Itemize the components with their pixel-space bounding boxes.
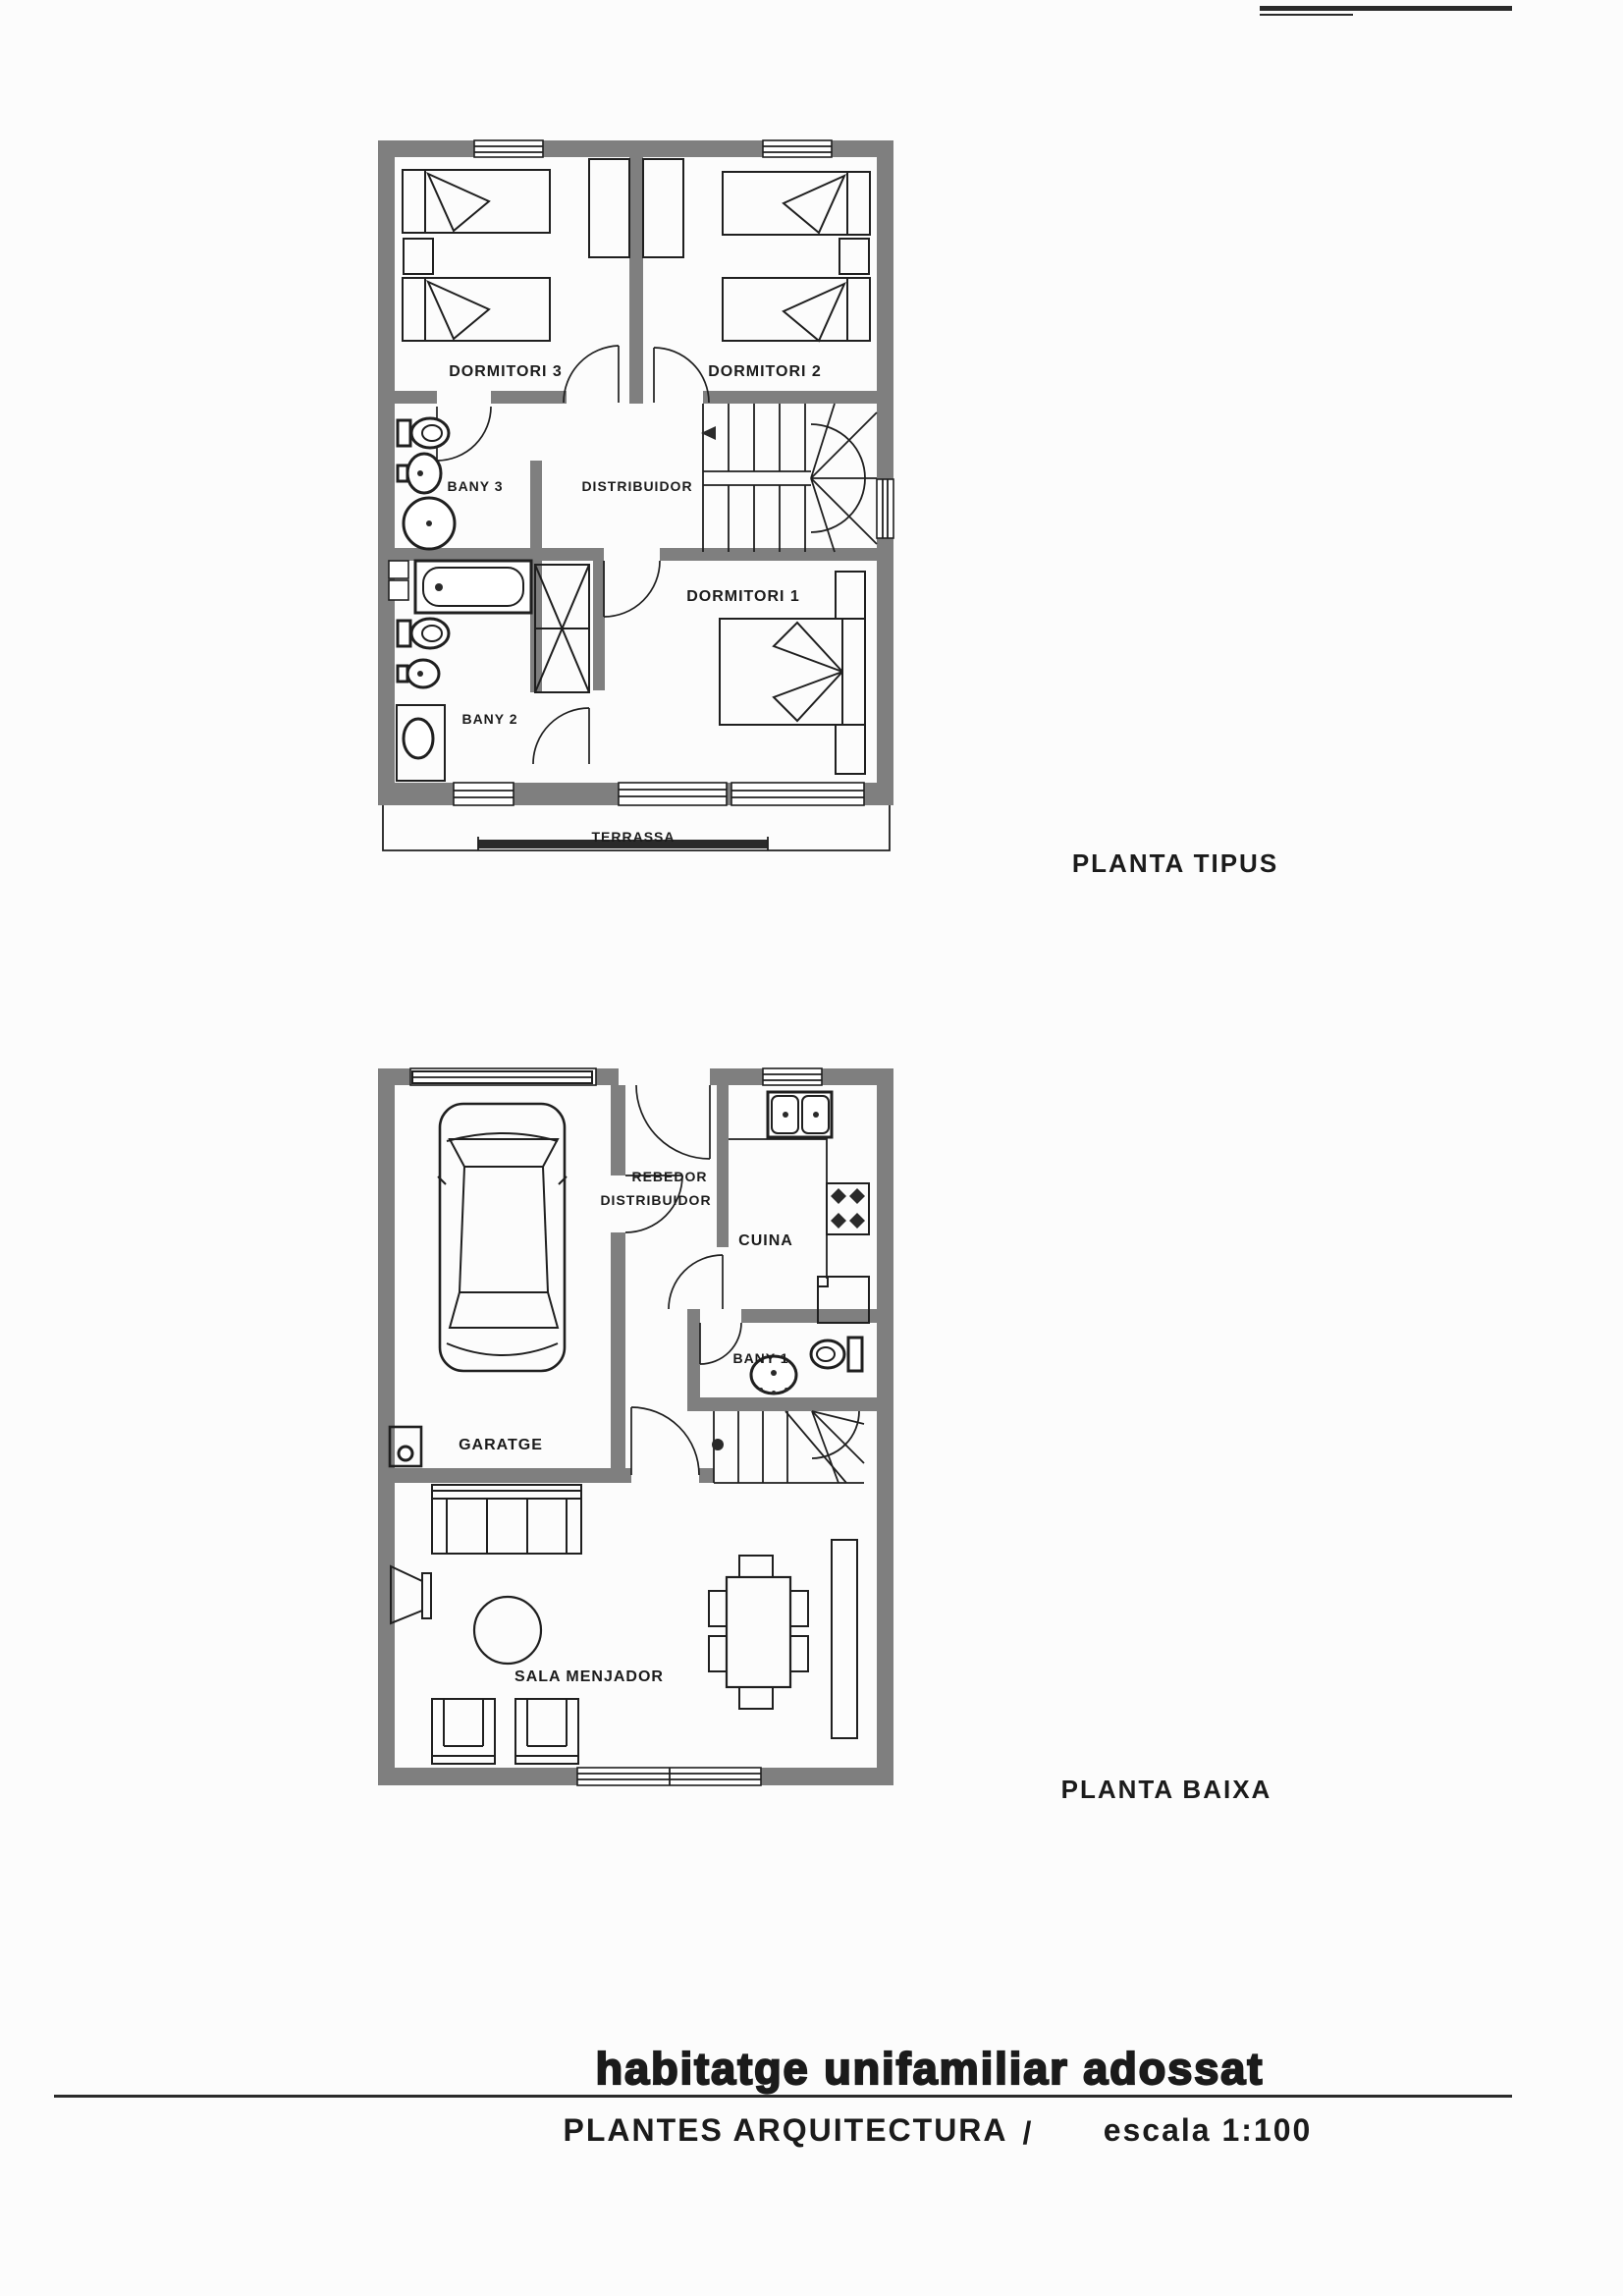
toilet-icon [398, 418, 449, 448]
toilet-icon [398, 619, 449, 648]
room-label-rebedor: REBEDOR [631, 1169, 707, 1184]
room-label-cuina: CUINA [738, 1232, 793, 1249]
upper-floor-plan: DORMITORI 3 DORMITORI 2 BANY 3 DISTRIBUI… [378, 140, 1278, 878]
nightstand-icon [404, 239, 433, 274]
room-label-bany2: BANY 2 [461, 711, 517, 727]
stove-icon [827, 1183, 869, 1234]
room-label-bany1: BANY 1 [732, 1350, 788, 1366]
sheet-title: habitatge unifamiliar adossat [596, 2044, 1265, 2094]
lower-floor-plan: REBEDOR DISTRIBUIDOR CUINA BANY 1 GARATG… [378, 1068, 1271, 1804]
floor-plan-drawing: DORMITORI 3 DORMITORI 2 BANY 3 DISTRIBUI… [0, 0, 1623, 2296]
caption-planta-tipus: PLANTA TIPUS [1072, 848, 1278, 878]
wardrobe-icon [535, 565, 589, 692]
room-label-sala-menjador: SALA MENJADOR [514, 1668, 664, 1685]
sheet-subtitle-divider: / [1023, 2115, 1034, 2151]
bathtub-icon [415, 561, 531, 613]
title-block: habitatge unifamiliar adossat PLANTES AR… [54, 2044, 1512, 2151]
terrace-door-icon [619, 783, 727, 805]
caption-planta-baixa: PLANTA BAIXA [1061, 1775, 1272, 1804]
windows [454, 140, 893, 805]
room-label-distribuidor: DISTRIBUIDOR [600, 1192, 711, 1208]
staircase-upper [701, 404, 877, 552]
stair-newel-icon [712, 1439, 724, 1450]
sheet-subtitle-left: PLANTES ARQUITECTURA [563, 2112, 1007, 2148]
sideboard-icon [832, 1540, 857, 1738]
title-rule [54, 2095, 1512, 2098]
room-label-dormitori1: DORMITORI 1 [686, 588, 800, 605]
room-label-terrassa: TERRASSA [591, 829, 675, 845]
sheet-subtitle-right: escala 1:100 [1104, 2112, 1313, 2148]
closet-icon [589, 159, 629, 257]
sofa-icon [432, 1485, 581, 1554]
kitchen-counter-icon [729, 1139, 827, 1279]
room-label-bany3: BANY 3 [447, 478, 503, 494]
bidet-icon [398, 454, 441, 493]
room-label-garatge: GARATGE [459, 1437, 543, 1453]
window-stairs-icon [877, 479, 893, 538]
room-label-distribuidor: DISTRIBUIDOR [581, 478, 692, 494]
drawing-sheet: DORMITORI 3 DORMITORI 2 BANY 3 DISTRIBUI… [0, 0, 1623, 2296]
bed-icon [403, 170, 550, 233]
window-dormitori3-icon [474, 140, 543, 157]
scan-artifact-line [1260, 6, 1512, 16]
bed-icon [403, 278, 550, 341]
bidet-icon [398, 660, 439, 687]
toilet-icon [811, 1338, 862, 1371]
nightstand-icon [839, 239, 869, 274]
bed-icon [723, 278, 870, 341]
kitchen-sink-icon [768, 1092, 832, 1137]
washbasin-icon [404, 498, 455, 549]
room-label-dormitori3: DORMITORI 3 [449, 363, 563, 380]
door-dormitori2-icon [654, 348, 709, 403]
armchair-icon [515, 1699, 578, 1764]
dining-table-icon [709, 1556, 808, 1709]
window-dormitori2-icon [763, 140, 832, 157]
staircase-lower [712, 1411, 864, 1483]
room-labels-lower: REBEDOR DISTRIBUIDOR CUINA BANY 1 GARATG… [459, 1169, 793, 1685]
door-dormitori3-icon [564, 346, 619, 403]
room-label-dormitori2: DORMITORI 2 [708, 363, 822, 380]
door-dormitori1-icon [604, 561, 660, 617]
tv-icon [391, 1566, 431, 1623]
garage-door-icon [410, 1068, 596, 1085]
window-bany2-icon [454, 783, 514, 805]
window-dormitori1-icon [731, 783, 864, 805]
door-sala-icon [631, 1407, 699, 1475]
door-bany2-icon [533, 708, 589, 764]
window-cuina-icon [763, 1068, 822, 1085]
door-cuina-icon [669, 1255, 723, 1309]
round-table-icon [474, 1597, 541, 1664]
car-icon [438, 1104, 567, 1371]
door-entry-icon [636, 1085, 710, 1159]
vanity-sink-icon [397, 705, 445, 781]
window-sala-icon [577, 1768, 761, 1785]
armchair-icon [432, 1699, 495, 1764]
bed-icon [723, 172, 870, 235]
closet-icon [643, 159, 683, 257]
